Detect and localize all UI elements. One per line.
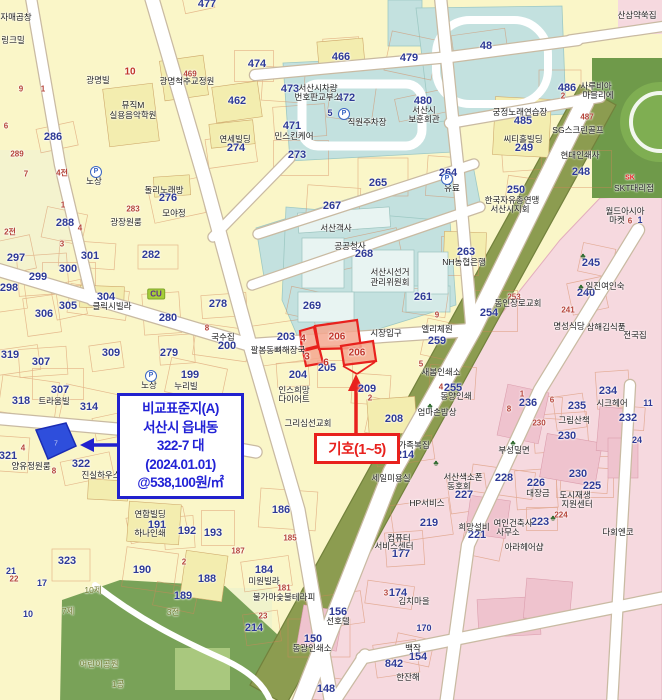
map-base-layer xyxy=(0,0,662,700)
callout-line: 비교표준지(A) xyxy=(122,400,239,419)
callout-line: 322-7 대 xyxy=(122,437,239,456)
callout-line: 서산시 읍내동 xyxy=(122,419,239,438)
callout-line: @538,100원/㎡ xyxy=(122,474,239,493)
reference-parcel-callout: 비교표준지(A) 서산시 읍내동 322-7 대 (2024.01.01) @5… xyxy=(117,393,244,499)
map-canvas[interactable]: 7 4774624664744734724794804810916289286광… xyxy=(0,0,662,700)
callout-line: (2024.01.01) xyxy=(122,456,239,475)
symbol-range-callout: 기호(1~5) xyxy=(314,433,400,464)
